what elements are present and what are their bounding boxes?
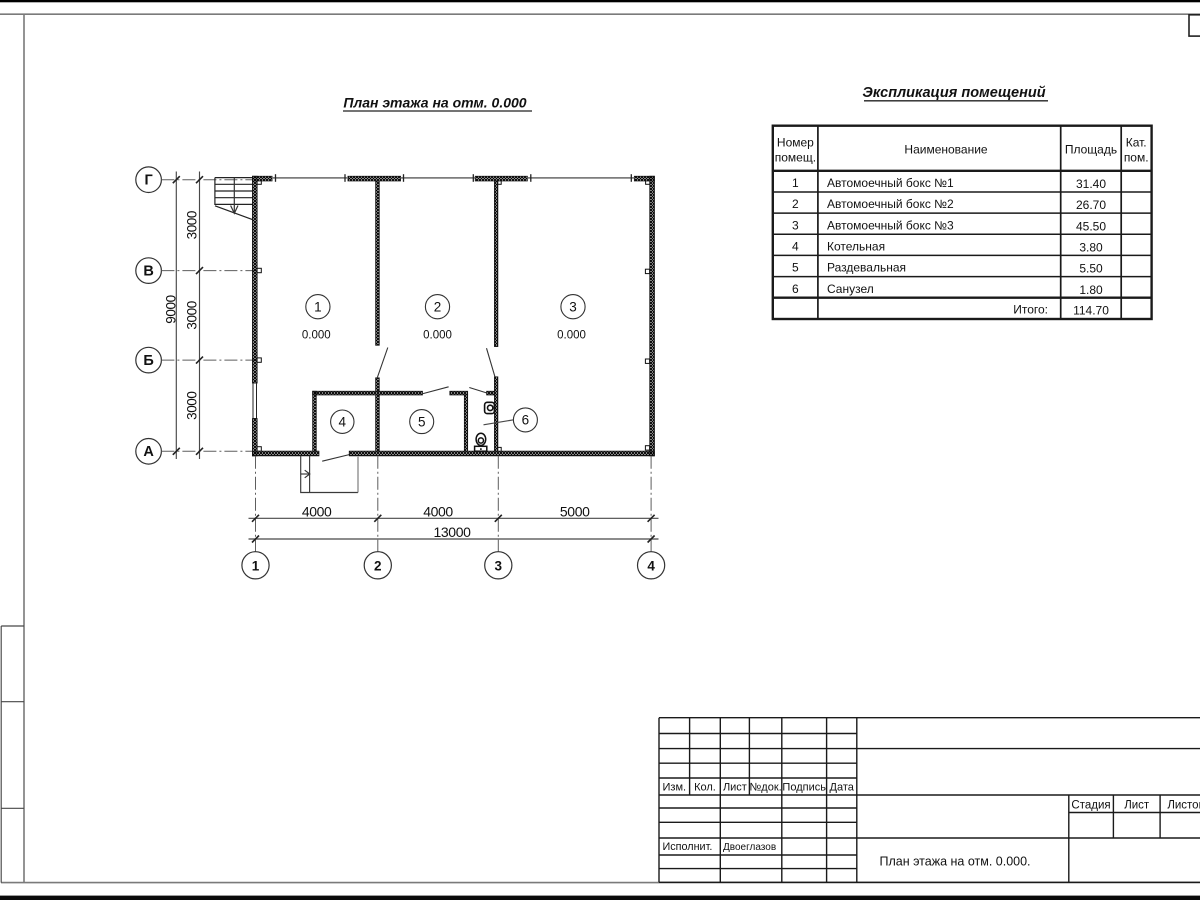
svg-text:Подпись: Подпись: [782, 782, 826, 794]
svg-text:Площадь: Площадь: [1065, 143, 1117, 157]
svg-text:Изм.: Изм.: [663, 782, 687, 794]
svg-text:4: 4: [647, 558, 655, 573]
svg-text:Исполнит.: Исполнит.: [663, 841, 713, 853]
svg-text:4000: 4000: [302, 503, 332, 519]
svg-text:3.80: 3.80: [1079, 241, 1103, 255]
svg-text:9000: 9000: [164, 295, 179, 323]
svg-text:13000: 13000: [434, 524, 472, 540]
svg-text:Листов: Листов: [1167, 800, 1200, 812]
svg-text:0.000: 0.000: [302, 330, 331, 342]
svg-text:План этажа на отм. 0.000: План этажа на отм. 0.000: [343, 95, 526, 111]
svg-text:Номер: Номер: [777, 136, 814, 150]
svg-text:1: 1: [252, 558, 260, 573]
svg-text:Котельная: Котельная: [827, 240, 885, 254]
svg-text:3: 3: [569, 300, 577, 315]
svg-text:114.70: 114.70: [1073, 304, 1109, 318]
svg-text:3000: 3000: [185, 211, 200, 239]
svg-text:1: 1: [792, 176, 799, 190]
svg-text:Автомоечный бокс №3: Автомоечный бокс №3: [827, 218, 954, 232]
svg-text:Итого:: Итого:: [1013, 303, 1048, 317]
svg-text:3: 3: [792, 218, 799, 232]
svg-text:1.80: 1.80: [1079, 283, 1103, 297]
svg-text:Б: Б: [143, 353, 153, 369]
svg-text:Двоеглазов: Двоеглазов: [723, 842, 776, 853]
svg-text:6: 6: [792, 282, 799, 296]
svg-text:31.40: 31.40: [1076, 177, 1106, 191]
svg-text:План этажа на отм. 0.000.: План этажа на отм. 0.000.: [879, 854, 1030, 868]
svg-text:Санузел: Санузел: [827, 282, 874, 296]
svg-text:Автомоечный бокс №2: Автомоечный бокс №2: [827, 197, 954, 211]
svg-text:Автомоечный бокс №1: Автомоечный бокс №1: [827, 176, 954, 190]
svg-text:6: 6: [522, 413, 530, 428]
svg-text:пом.: пом.: [1124, 151, 1149, 165]
svg-text:помещ.: помещ.: [775, 151, 816, 165]
svg-text:0.000: 0.000: [423, 330, 452, 342]
svg-text:45.50: 45.50: [1076, 219, 1106, 233]
svg-text:2: 2: [374, 558, 382, 573]
svg-text:Раздевальная: Раздевальная: [827, 261, 906, 275]
svg-text:1: 1: [314, 300, 322, 315]
svg-text:3: 3: [495, 558, 503, 573]
svg-text:4000: 4000: [423, 503, 453, 519]
svg-text:Кол.: Кол.: [694, 782, 716, 794]
svg-text:4: 4: [792, 240, 799, 254]
svg-text:Дата: Дата: [830, 782, 855, 794]
svg-text:5000: 5000: [560, 503, 590, 519]
svg-text:2: 2: [434, 300, 442, 315]
svg-text:5: 5: [418, 414, 426, 429]
svg-text:Лист: Лист: [723, 782, 747, 794]
svg-text:26.70: 26.70: [1076, 198, 1106, 212]
svg-text:В: В: [143, 264, 153, 280]
svg-text:А: А: [143, 444, 154, 460]
svg-text:3000: 3000: [185, 301, 200, 329]
svg-text:Г: Г: [144, 173, 152, 189]
svg-text:Стадия: Стадия: [1071, 800, 1110, 812]
svg-text:4: 4: [339, 415, 347, 430]
svg-text:2: 2: [792, 197, 799, 211]
svg-text:Кат.: Кат.: [1126, 136, 1147, 150]
svg-text:3000: 3000: [185, 391, 200, 419]
svg-text:5: 5: [792, 261, 799, 275]
svg-text:Экспликация помещений: Экспликация помещений: [862, 85, 1045, 101]
svg-text:№док.: №док.: [749, 782, 781, 794]
svg-text:Наименование: Наименование: [904, 143, 988, 157]
svg-text:0.000: 0.000: [557, 330, 586, 342]
svg-text:5.50: 5.50: [1079, 262, 1103, 276]
svg-text:Лист: Лист: [1124, 800, 1150, 812]
